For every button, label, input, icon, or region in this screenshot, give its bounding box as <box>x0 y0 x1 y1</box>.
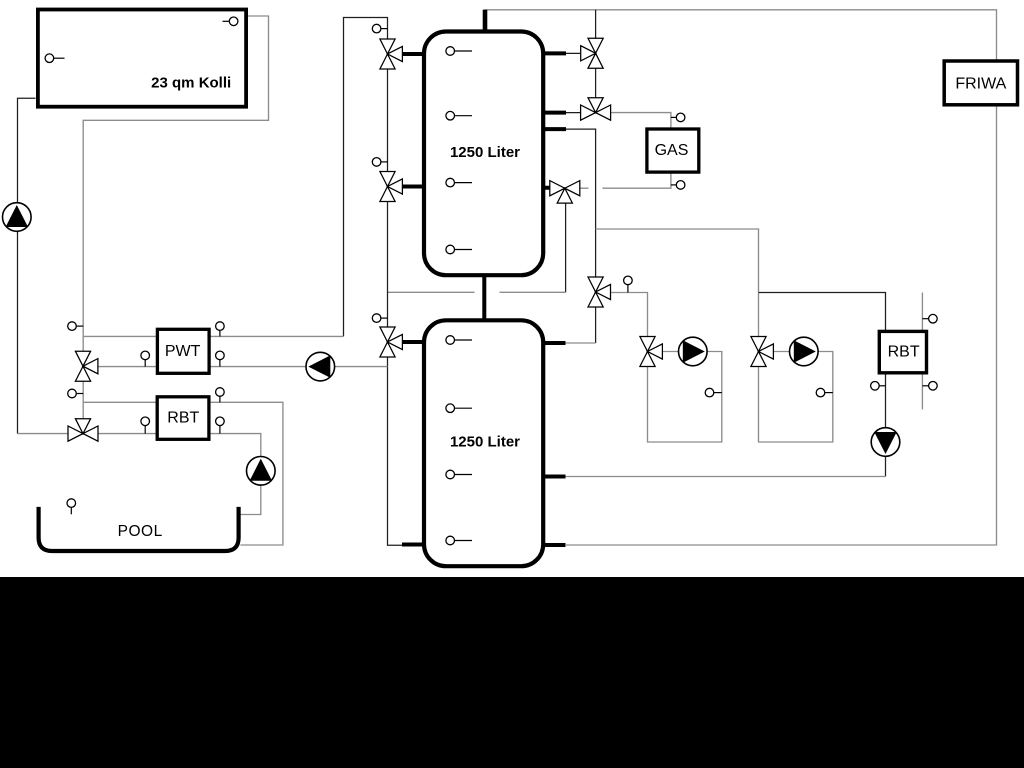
svg-text:RBT: RBT <box>888 343 920 360</box>
svg-text:FRIWA: FRIWA <box>955 75 1006 92</box>
svg-text:1250 Liter: 1250 Liter <box>450 434 520 451</box>
svg-text:23 qm Kolli: 23 qm Kolli <box>151 74 231 91</box>
svg-text:RBT: RBT <box>167 410 199 427</box>
svg-text:GAS: GAS <box>655 142 689 159</box>
svg-text:POOL: POOL <box>118 523 163 540</box>
svg-text:PWT: PWT <box>165 343 201 360</box>
svg-text:1250 Liter: 1250 Liter <box>450 144 520 161</box>
